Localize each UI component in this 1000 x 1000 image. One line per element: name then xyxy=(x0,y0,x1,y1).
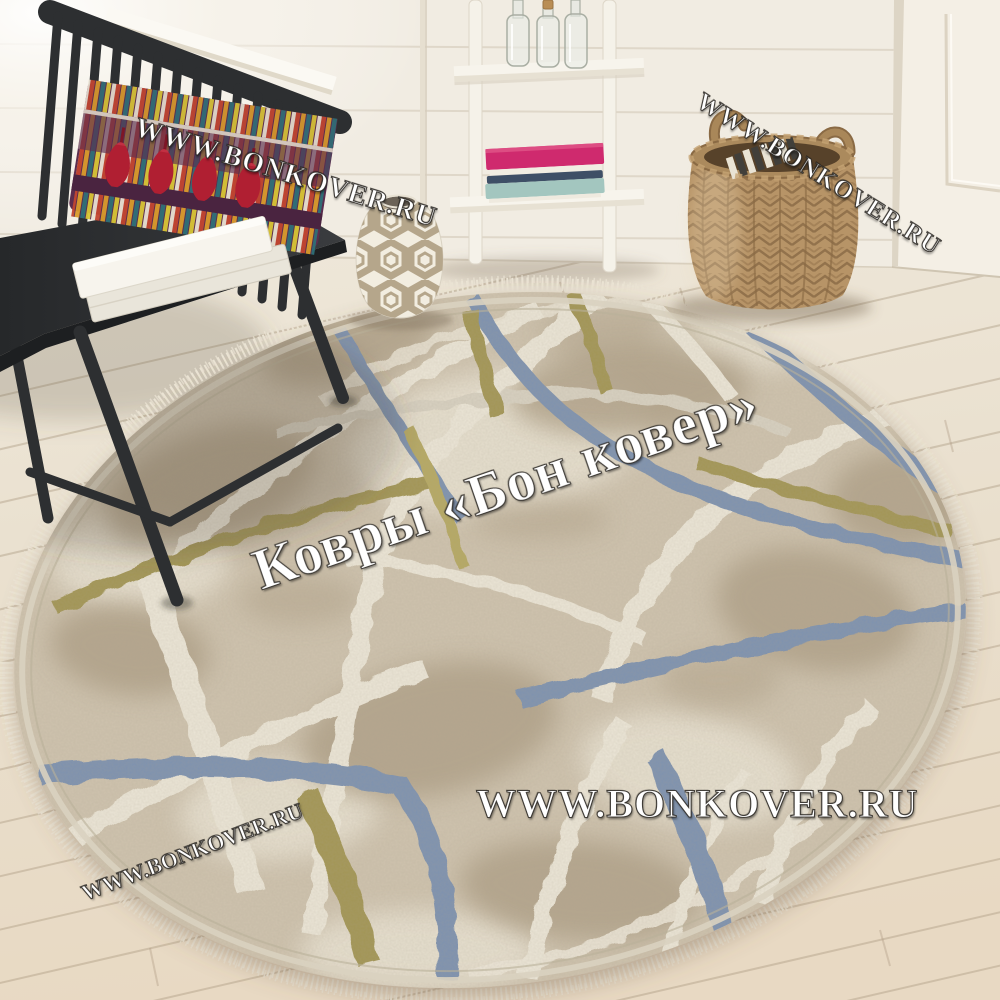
watermark-bottom-center: WWW.BONKOVER.RU xyxy=(476,780,918,827)
shelf-shadow xyxy=(430,257,660,283)
glass-bottles xyxy=(507,0,587,68)
room-photo: WWW.BONKOVER.RU WWW.BONKOVER.RU Ковры «Б… xyxy=(0,0,1000,1000)
shelf-book-stack xyxy=(483,143,606,203)
shelf-post-right xyxy=(603,0,616,272)
basket-highlight xyxy=(689,160,741,300)
cork xyxy=(543,0,553,9)
shelf-post-left xyxy=(469,0,482,264)
